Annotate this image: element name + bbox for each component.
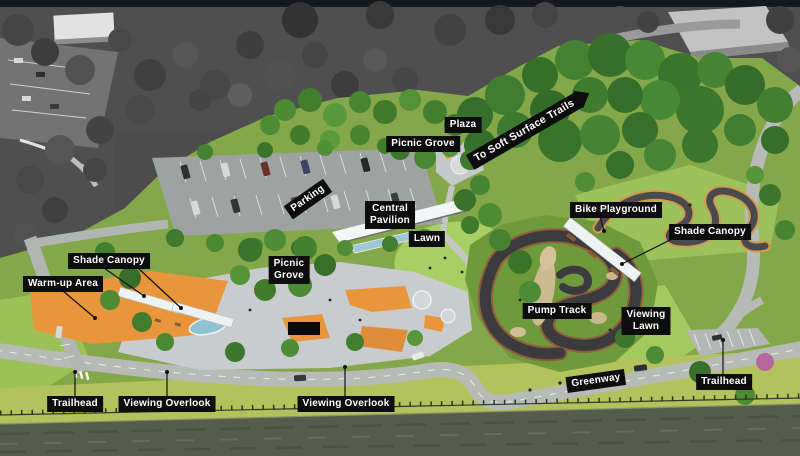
label-bike-playground: Bike Playground [570,202,662,218]
label-warm-up-area: Warm-up Area [23,276,103,292]
unlabeled-black-box [288,322,320,335]
label-central-pavilion: Central Pavilion [365,201,415,229]
label-picnic-grove-north: Picnic Grove [386,136,460,152]
label-lawn: Lawn [409,231,445,247]
label-plaza: Plaza [445,117,482,133]
pink-flowering-tree [756,353,774,371]
park-master-plan-rendering: Plaza Picnic Grove Parking Central Pavil… [0,0,800,456]
label-picnic-grove-center: Picnic Grove [269,256,310,284]
label-viewing-lawn: Viewing Lawn [621,307,670,335]
label-pump-track: Pump Track [523,303,592,319]
label-viewing-overlook-west: Viewing Overlook [119,396,216,412]
label-trailhead-west: Trailhead [47,396,103,412]
label-shade-canopy-west: Shade Canopy [68,253,150,269]
label-trailhead-east: Trailhead [696,374,752,390]
label-viewing-overlook-center: Viewing Overlook [298,396,395,412]
label-shade-canopy-east: Shade Canopy [669,224,751,240]
